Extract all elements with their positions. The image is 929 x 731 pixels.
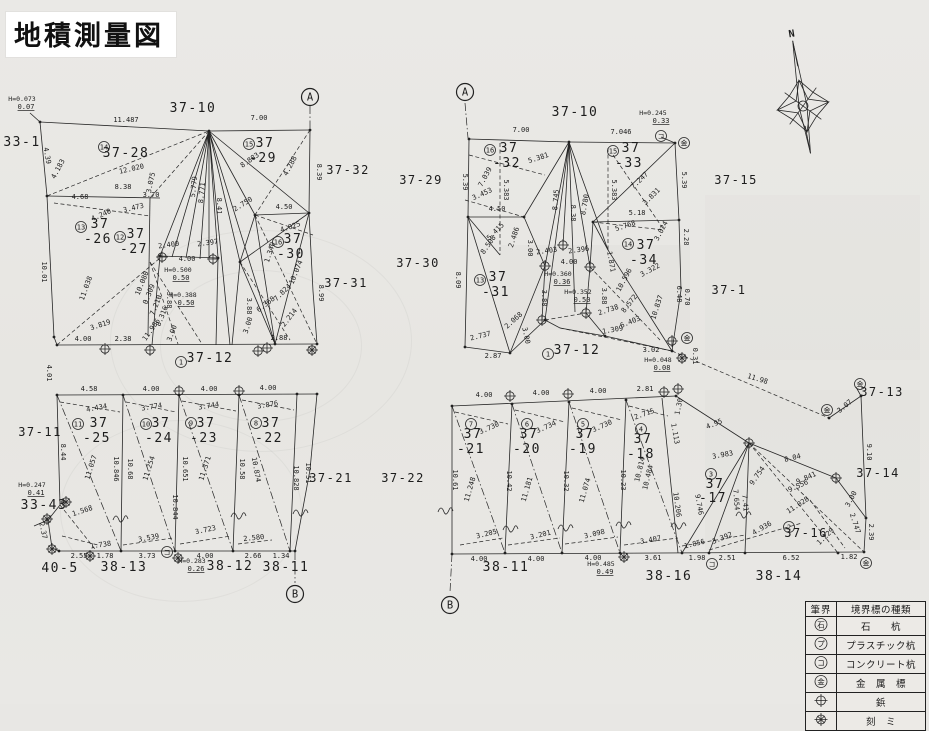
parcel-label: -24 [145, 431, 173, 446]
legend-type-label: 刻 ミ [837, 712, 926, 731]
vertex-dot [174, 550, 177, 553]
measurement-label: 10.01 [40, 261, 48, 282]
measurement-label: 8.508 [479, 234, 498, 256]
parcel-label: 37 [284, 232, 303, 247]
measurement-label: 8.38 [569, 205, 577, 222]
legend-symbol-cell: 石 [806, 617, 837, 636]
measurement-label: 7.00 [513, 126, 530, 134]
measurement-label: 4.39 [42, 147, 53, 165]
measurement-label: 6.403 [619, 314, 642, 329]
legend-glyph: 石 [817, 620, 825, 629]
measurement-label: 0.07 [18, 103, 35, 111]
circled-number: 2 [787, 524, 791, 532]
parcel-label: 40-5 [41, 561, 78, 576]
measurement-label: 11.371 [197, 455, 212, 482]
measurement-label: 3.774 [141, 401, 163, 412]
legend-row: 金金 属 標 [806, 674, 926, 693]
parcel-label: 37-21 [309, 471, 353, 485]
measurement-label: 1.856 [683, 538, 705, 551]
measurement-label: 3.00 [242, 316, 255, 335]
axis-point-letter: B [292, 589, 298, 601]
parcel-label: 37 [500, 141, 519, 156]
kon-marker-glyph: コ [164, 549, 171, 557]
marker-cross [584, 261, 596, 273]
vertex-dot [120, 550, 123, 553]
parcel-label: 38-14 [756, 569, 803, 584]
measurement-label: H=0.500 [164, 266, 191, 274]
circled-number: 11 [74, 421, 82, 429]
measurement-label: 10.23 [619, 469, 627, 490]
measurement-label: 3.876 [257, 399, 279, 410]
scanned-survey-document: { "title": "地積測量図", "north": { "label": … [0, 0, 929, 704]
parcel-label: -18 [627, 447, 655, 462]
parcel-label: 37-31 [324, 276, 368, 290]
legend-symbol-icon: 金 [811, 674, 831, 689]
vertex-dot [46, 195, 49, 198]
measurement-label: 10.206 [671, 492, 682, 518]
measurement-label: 4.58 [81, 385, 98, 393]
squiggle-mark [558, 525, 573, 531]
measurement-label: 11.181 [520, 476, 535, 503]
measurement-label: 4.50 [489, 205, 506, 213]
measurement-label: 11.986 [141, 317, 162, 342]
measurement-label: 1.738 [90, 540, 112, 551]
vertex-dot [316, 393, 319, 396]
measurement-label: 0.36 [554, 278, 571, 286]
kin-marker-glyph: 金 [681, 139, 688, 148]
measurement-label: 4.00 [528, 555, 545, 563]
vertex-dot [308, 212, 311, 215]
parcel-label: 33-43 [21, 498, 68, 513]
kin-marker-glyph: 金 [857, 380, 864, 389]
parcel-label: 37 [197, 416, 216, 431]
measurement-label: 1.82 [841, 553, 858, 561]
squiggle-mark [616, 522, 631, 528]
vertex-dot [678, 219, 681, 222]
vertex-dot [464, 346, 467, 349]
circled-number: 14 [100, 144, 108, 152]
parcel-label: 37 [256, 136, 275, 151]
circled-number: 1 [179, 359, 183, 367]
measurement-label: 4.00 [143, 385, 160, 393]
north-arrow: N [765, 25, 836, 158]
parcel-label: 37-12 [187, 351, 234, 366]
measurement-label: H=0.485 [587, 560, 614, 568]
measurement-label: 3.473 [122, 202, 144, 215]
measurement-label: 11.057 [83, 454, 98, 481]
vertex-dot [675, 395, 678, 398]
vertex-dot [568, 141, 571, 144]
vertex-dot [523, 216, 526, 219]
marker-cross [562, 388, 574, 400]
circled-number: 7 [469, 421, 473, 429]
legend-symbol-icon: コ [811, 655, 831, 670]
measurement-label: 2.28 [682, 229, 690, 246]
parcel-label: -33 [615, 156, 643, 171]
measurement-label: 0.26 [188, 565, 205, 573]
measurement-label: 4.95 [705, 417, 724, 431]
survey-drawing: N H=0.0730.0711.4877.004.394.18312.0208.… [0, 0, 929, 704]
circled-number: 10 [142, 421, 150, 429]
legend-header-type: 境界標の種類 [837, 602, 926, 617]
measurement-label: 2.737 [469, 330, 491, 343]
parcel-label: 37-30 [396, 256, 440, 270]
vertex-dot [53, 336, 56, 339]
vertex-dot [708, 552, 711, 555]
vertex-dot [58, 550, 61, 553]
measurement-label: H=0.360 [544, 270, 571, 278]
measurement-label: 8.39 [315, 164, 323, 181]
measurement-label: 5.18 [629, 209, 646, 217]
legend-row: 刻 ミ [806, 712, 926, 731]
marker-cross [144, 344, 156, 356]
measurement-label: 12.020 [118, 162, 144, 175]
measurement-label: 10.074 [288, 259, 305, 285]
measurement-label: 3.723 [194, 524, 216, 536]
measurement-label: H=0.245 [639, 109, 666, 117]
parcel-label: 37-12 [554, 343, 601, 358]
circled-number: 15 [609, 148, 617, 156]
parcel-label: 37-29 [399, 173, 443, 187]
measurement-label: 1.78 [97, 552, 114, 560]
measurement-label: 11.248 [463, 476, 478, 503]
measurement-label: 7.039 [477, 166, 494, 188]
vertex-dot [828, 417, 831, 420]
parcel-label: 37-1 [712, 283, 747, 297]
parcel-label: -20 [513, 442, 541, 457]
measurement-label: 3.983 [712, 449, 734, 461]
measurement-label: 0.41 [28, 489, 45, 497]
squiggle-mark [438, 508, 453, 514]
left-diagram: H=0.0730.0711.4877.004.394.18312.0208.39… [3, 89, 369, 603]
measurement-label: 4.00 [260, 384, 277, 392]
vertex-dot [56, 344, 59, 347]
measurement-label: 1.30 [673, 398, 684, 416]
vertex-dot [451, 553, 454, 556]
measurement-label: 3.539 [138, 532, 160, 544]
measurement-label: 10.828 [292, 465, 300, 490]
vertex-dot [837, 552, 840, 555]
measurement-label: 2.51 [719, 554, 736, 562]
parcel-label: 37-10 [170, 101, 217, 116]
measurement-label: 2.214 [280, 307, 299, 329]
measurement-label: 7.046 [610, 128, 631, 136]
marker-cross [252, 345, 264, 357]
squiggle-mark [503, 526, 518, 532]
marker-cross [580, 307, 592, 319]
parcel-label: -23 [190, 431, 218, 446]
vertex-dot [568, 401, 571, 404]
parcel-label: 37 [637, 238, 656, 253]
vertex-dot [744, 552, 747, 555]
measurement-label: 3.61 [645, 554, 662, 562]
measurement-label: 7.41 [740, 494, 749, 511]
parcel-label: 33-1 [3, 135, 40, 150]
vertex-dot [178, 394, 181, 397]
parcel-label: 37-15 [714, 173, 758, 187]
measurement-label: 3.00 [165, 324, 178, 343]
parcel-label: -26 [84, 232, 112, 247]
marker-cross [830, 472, 842, 484]
measurement-label: H=0.352 [564, 288, 591, 296]
parcel-label: -34 [630, 253, 658, 268]
parcel-label: 37-14 [856, 466, 900, 480]
circled-number: 13 [476, 277, 484, 285]
parcel-label: -29 [249, 151, 277, 166]
circled-number: 12 [116, 234, 124, 242]
measurement-label: 4.00 [75, 335, 92, 343]
measurement-label: 4.434 [86, 402, 108, 414]
circled-number: 6 [525, 421, 529, 429]
measurement-label: 3.819 [89, 318, 112, 332]
measurement-label: 9.10 [865, 444, 873, 461]
legend-type-label: コンクリート杭 [837, 655, 926, 674]
legend-symbol-icon [811, 693, 831, 708]
vertex-dot [860, 395, 863, 398]
measurement-label: 2.39 [867, 524, 875, 541]
page-title: 地積測量図 [6, 12, 176, 57]
marker-cross [504, 390, 516, 402]
circled-number: 5 [581, 421, 585, 429]
measurement-label: 0.50 [178, 299, 195, 307]
measurement-label: H=0.073 [8, 95, 35, 103]
vertex-dot [296, 393, 299, 396]
measurement-label: 10.651 [181, 456, 189, 481]
measurement-label: 4.288 [282, 155, 299, 177]
vertex-dot [208, 130, 211, 133]
vertex-dot [309, 129, 312, 132]
circled-number: 1 [546, 351, 550, 359]
circled-number: 16 [486, 147, 494, 155]
measurement-label: 3.831 [641, 186, 662, 207]
measurement-label: 8.04 [783, 452, 801, 464]
measurement-label: 2.400 [158, 240, 180, 251]
legend-glyph: コ [817, 658, 825, 667]
measurement-label: 4.00 [201, 385, 218, 393]
parcel-label: -19 [569, 442, 597, 457]
vertex-dot [544, 319, 547, 322]
vertex-dot [467, 216, 470, 219]
parcel-label: 38-11 [263, 560, 310, 575]
axis-point-letter: A [307, 92, 314, 104]
measurement-label: 10.68 [126, 458, 134, 479]
measurement-label: 8.780 [579, 194, 591, 216]
vertex-dot [294, 550, 297, 553]
legend-symbol-cell [806, 712, 837, 731]
legend-symbol-icon: プ [811, 636, 831, 651]
vertex-dot [122, 394, 125, 397]
legend-glyph: 金 [817, 676, 825, 686]
measurement-label: 9.754 [748, 465, 767, 487]
measurement-label: 4.68 [72, 193, 89, 201]
measurement-label: 4.00 [179, 255, 196, 263]
parcel-label: 37 [152, 416, 171, 431]
kon-marker-glyph: コ [709, 561, 716, 569]
measurement-label: 2.81 [637, 385, 654, 393]
measurement-label: 8.572 [620, 293, 639, 315]
legend-header-row: 筆界 境界標の種類 [806, 602, 926, 617]
kin-marker-glyph: 金 [863, 559, 870, 568]
measurement-label: 10.32 [562, 470, 570, 491]
measurement-label: 10.61 [451, 469, 459, 490]
vertex-dot [316, 343, 319, 346]
parcel-label: -21 [457, 442, 485, 457]
measurement-label: H=0.247 [18, 481, 45, 489]
legend-symbol-cell: 金 [806, 674, 837, 693]
vertex-dot [625, 399, 628, 402]
circled-number: 3 [709, 471, 713, 479]
measurement-label: 11.074 [578, 477, 593, 504]
measurement-label: 1.871 [605, 251, 617, 273]
legend-row: ココンクリート杭 [806, 655, 926, 674]
measurement-label: 5.39 [680, 172, 688, 189]
vertex-dot [561, 552, 564, 555]
legend-symbol-cell: コ [806, 655, 837, 674]
parcel-label: -22 [255, 431, 283, 446]
parcel-label: 37 [91, 217, 110, 232]
parcel-label: 37-11 [18, 425, 62, 439]
vertex-dot [681, 552, 684, 555]
marker-cross [156, 251, 168, 263]
circled-number: 13 [77, 224, 85, 232]
vertex-dot [217, 257, 220, 260]
measurement-label: 4.01 [45, 365, 53, 382]
legend-row: ププラスチック杭 [806, 636, 926, 655]
measurement-label: 2.580 [243, 533, 265, 543]
parcel-label: 38-11 [483, 560, 530, 575]
vertex-dot [511, 403, 514, 406]
parcel-label: 38-13 [101, 560, 148, 575]
measurement-label: 2.38 [115, 335, 132, 343]
vertex-dot [604, 335, 607, 338]
measurement-label: 1.113 [669, 423, 681, 445]
vertex-dot [232, 550, 235, 553]
kon-marker-glyph: コ [658, 133, 665, 141]
legend-symbol-icon [811, 712, 831, 727]
parcel-label: 37-13 [860, 385, 904, 399]
marker-cross [743, 437, 755, 449]
legend-symbol-cell [806, 693, 837, 712]
measurement-label: 3.205 [475, 528, 497, 541]
vertex-dot [239, 261, 242, 264]
measurement-label: 2.403 [536, 246, 558, 257]
measurement-label: 5.383 [610, 179, 618, 200]
measurement-label: 3.453 [471, 186, 494, 202]
measurement-label: 11.038 [78, 275, 94, 302]
vertex-dot [468, 138, 471, 141]
parcel-label: 37-10 [552, 105, 599, 120]
measurement-label: 0.33 [653, 117, 670, 125]
squiggle-mark [736, 512, 751, 518]
measurement-label: 11.98 [746, 372, 768, 386]
measurement-label: 2.486 [507, 226, 521, 249]
parcel-label: -32 [493, 156, 521, 171]
measurement-label: 8.09 [454, 272, 462, 289]
measurement-label: 3.098 [583, 528, 605, 541]
measurement-label: H=0.048 [644, 356, 671, 364]
measurement-label: 3.88 [540, 290, 548, 307]
measurement-label: 3.407 [640, 534, 662, 546]
measurement-label: 10.42 [505, 470, 513, 491]
measurement-label: 0.31 [691, 348, 699, 365]
north-label-text: N [788, 28, 796, 40]
vertex-dot [289, 550, 292, 553]
parcel-label: 37 [127, 227, 146, 242]
measurement-label: 8.771 [197, 182, 207, 204]
measurement-label: 7.247 [629, 170, 650, 190]
measurement-label: 4.00 [476, 391, 493, 399]
measurement-label: 8.44 [59, 444, 67, 461]
parcel-label: 38-16 [646, 569, 693, 584]
measurement-label: 0.08 [654, 364, 671, 372]
vertex-dot [504, 552, 507, 555]
measurement-label: 5.39 [461, 174, 469, 191]
legend-type-label: 金 属 標 [837, 674, 926, 693]
squiggle-mark [293, 510, 308, 516]
parcel-label: -31 [482, 285, 510, 300]
vertex-dot [671, 350, 674, 353]
measurement-label: 8.745 [551, 189, 561, 211]
measurement-label: 4.00 [590, 387, 607, 395]
vertex-dot [159, 255, 162, 258]
vertex-dot [865, 517, 868, 520]
parcel-label: 38-12 [207, 559, 254, 574]
measurement-label: 2.747 [848, 512, 862, 535]
circled-number: 16 [274, 239, 282, 247]
marker-cross [672, 383, 684, 395]
legend-header-symbol: 筆界 [806, 602, 837, 617]
measurement-label: 10.837 [649, 294, 664, 321]
parcel-label: 37 [489, 270, 508, 285]
measurement-label: 3.88 [600, 288, 608, 305]
measurement-label: 4.00 [561, 258, 578, 266]
vertex-dot [674, 142, 677, 145]
vertex-dot [238, 394, 241, 397]
vertex-dot [592, 221, 595, 224]
measurement-label: 2.715 [633, 407, 656, 422]
measurement-label: 10.844 [171, 494, 179, 519]
measurement-label: 1.98 [689, 554, 706, 562]
measurement-label: 2.397 [197, 238, 219, 249]
measurement-label: 11.254 [141, 455, 156, 482]
vertex-dot [39, 121, 42, 124]
measurement-label: 3.00 [526, 240, 534, 257]
axis-point-letter: B [447, 600, 453, 612]
measurement-label: 4.00 [533, 389, 550, 397]
legend-table: 筆界 境界標の種類 石石 杭ププラスチック杭ココンクリート杭金金 属 標鋲刻 ミ [805, 601, 926, 731]
marker-cross [666, 335, 678, 347]
measurement-label: 6.368 [255, 295, 277, 314]
vertex-dot [509, 352, 512, 355]
measurement-label: 7.00 [251, 114, 268, 122]
kin-marker-glyph: 金 [684, 334, 691, 343]
measurement-label: 3.88 [245, 298, 253, 315]
parcel-label: -30 [277, 247, 305, 262]
legend-type-label: 鋲 [837, 693, 926, 712]
measurement-label: 2.738 [597, 303, 620, 317]
measurement-label: 8.38 [115, 183, 132, 191]
measurement-label: 6.52 [783, 554, 800, 562]
vertex-dot [863, 551, 866, 554]
parcel-label: 37-32 [326, 163, 370, 177]
legend-row: 鋲 [806, 693, 926, 712]
measurement-label: 0.49 [597, 568, 614, 576]
squiggle-mark [113, 516, 128, 522]
measurement-label: 3.07 [836, 398, 854, 415]
right-diagram: 7.007.046H=0.2450.335.397.0395.3813.4534… [381, 84, 904, 614]
measurement-label: 8.41 [215, 198, 223, 215]
measurement-label: 2.396 [568, 245, 590, 256]
